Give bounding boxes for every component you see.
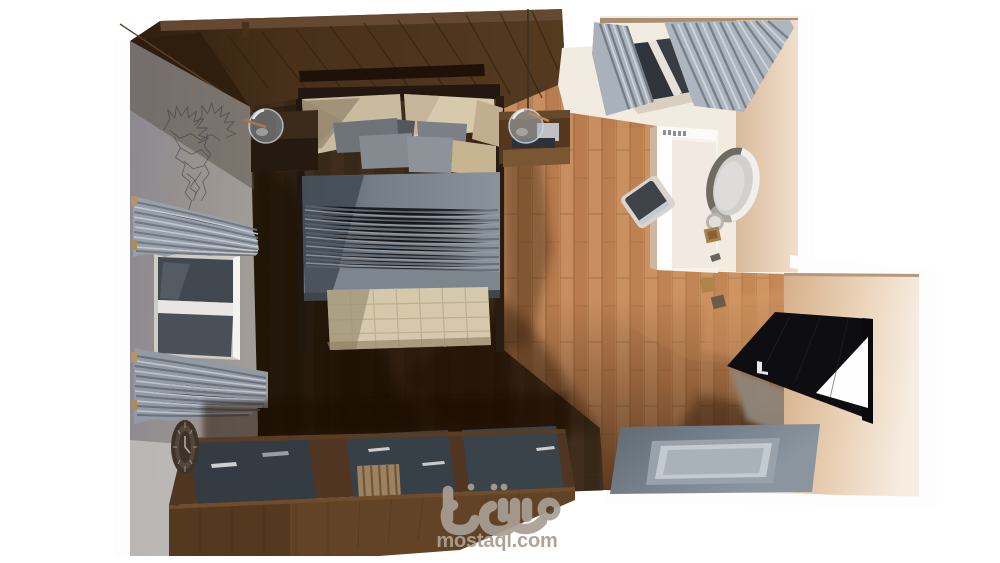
svg-text:mostaql.com: mostaql.com — [436, 530, 557, 552]
